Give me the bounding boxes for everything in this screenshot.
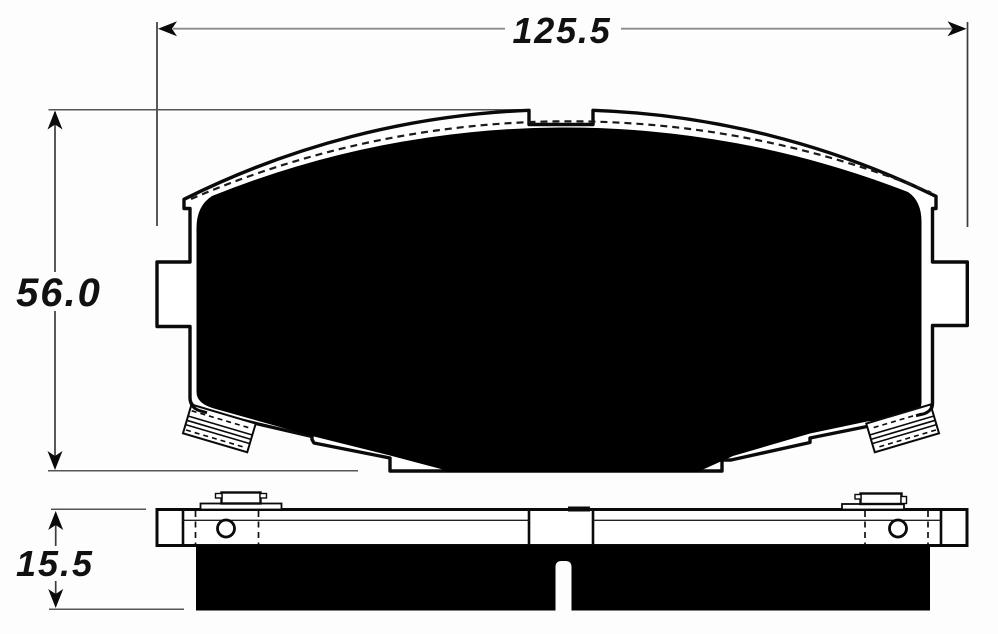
svg-text:15.5: 15.5 (16, 543, 94, 584)
svg-text:56.0: 56.0 (16, 271, 102, 315)
svg-text:125.5: 125.5 (512, 10, 611, 51)
